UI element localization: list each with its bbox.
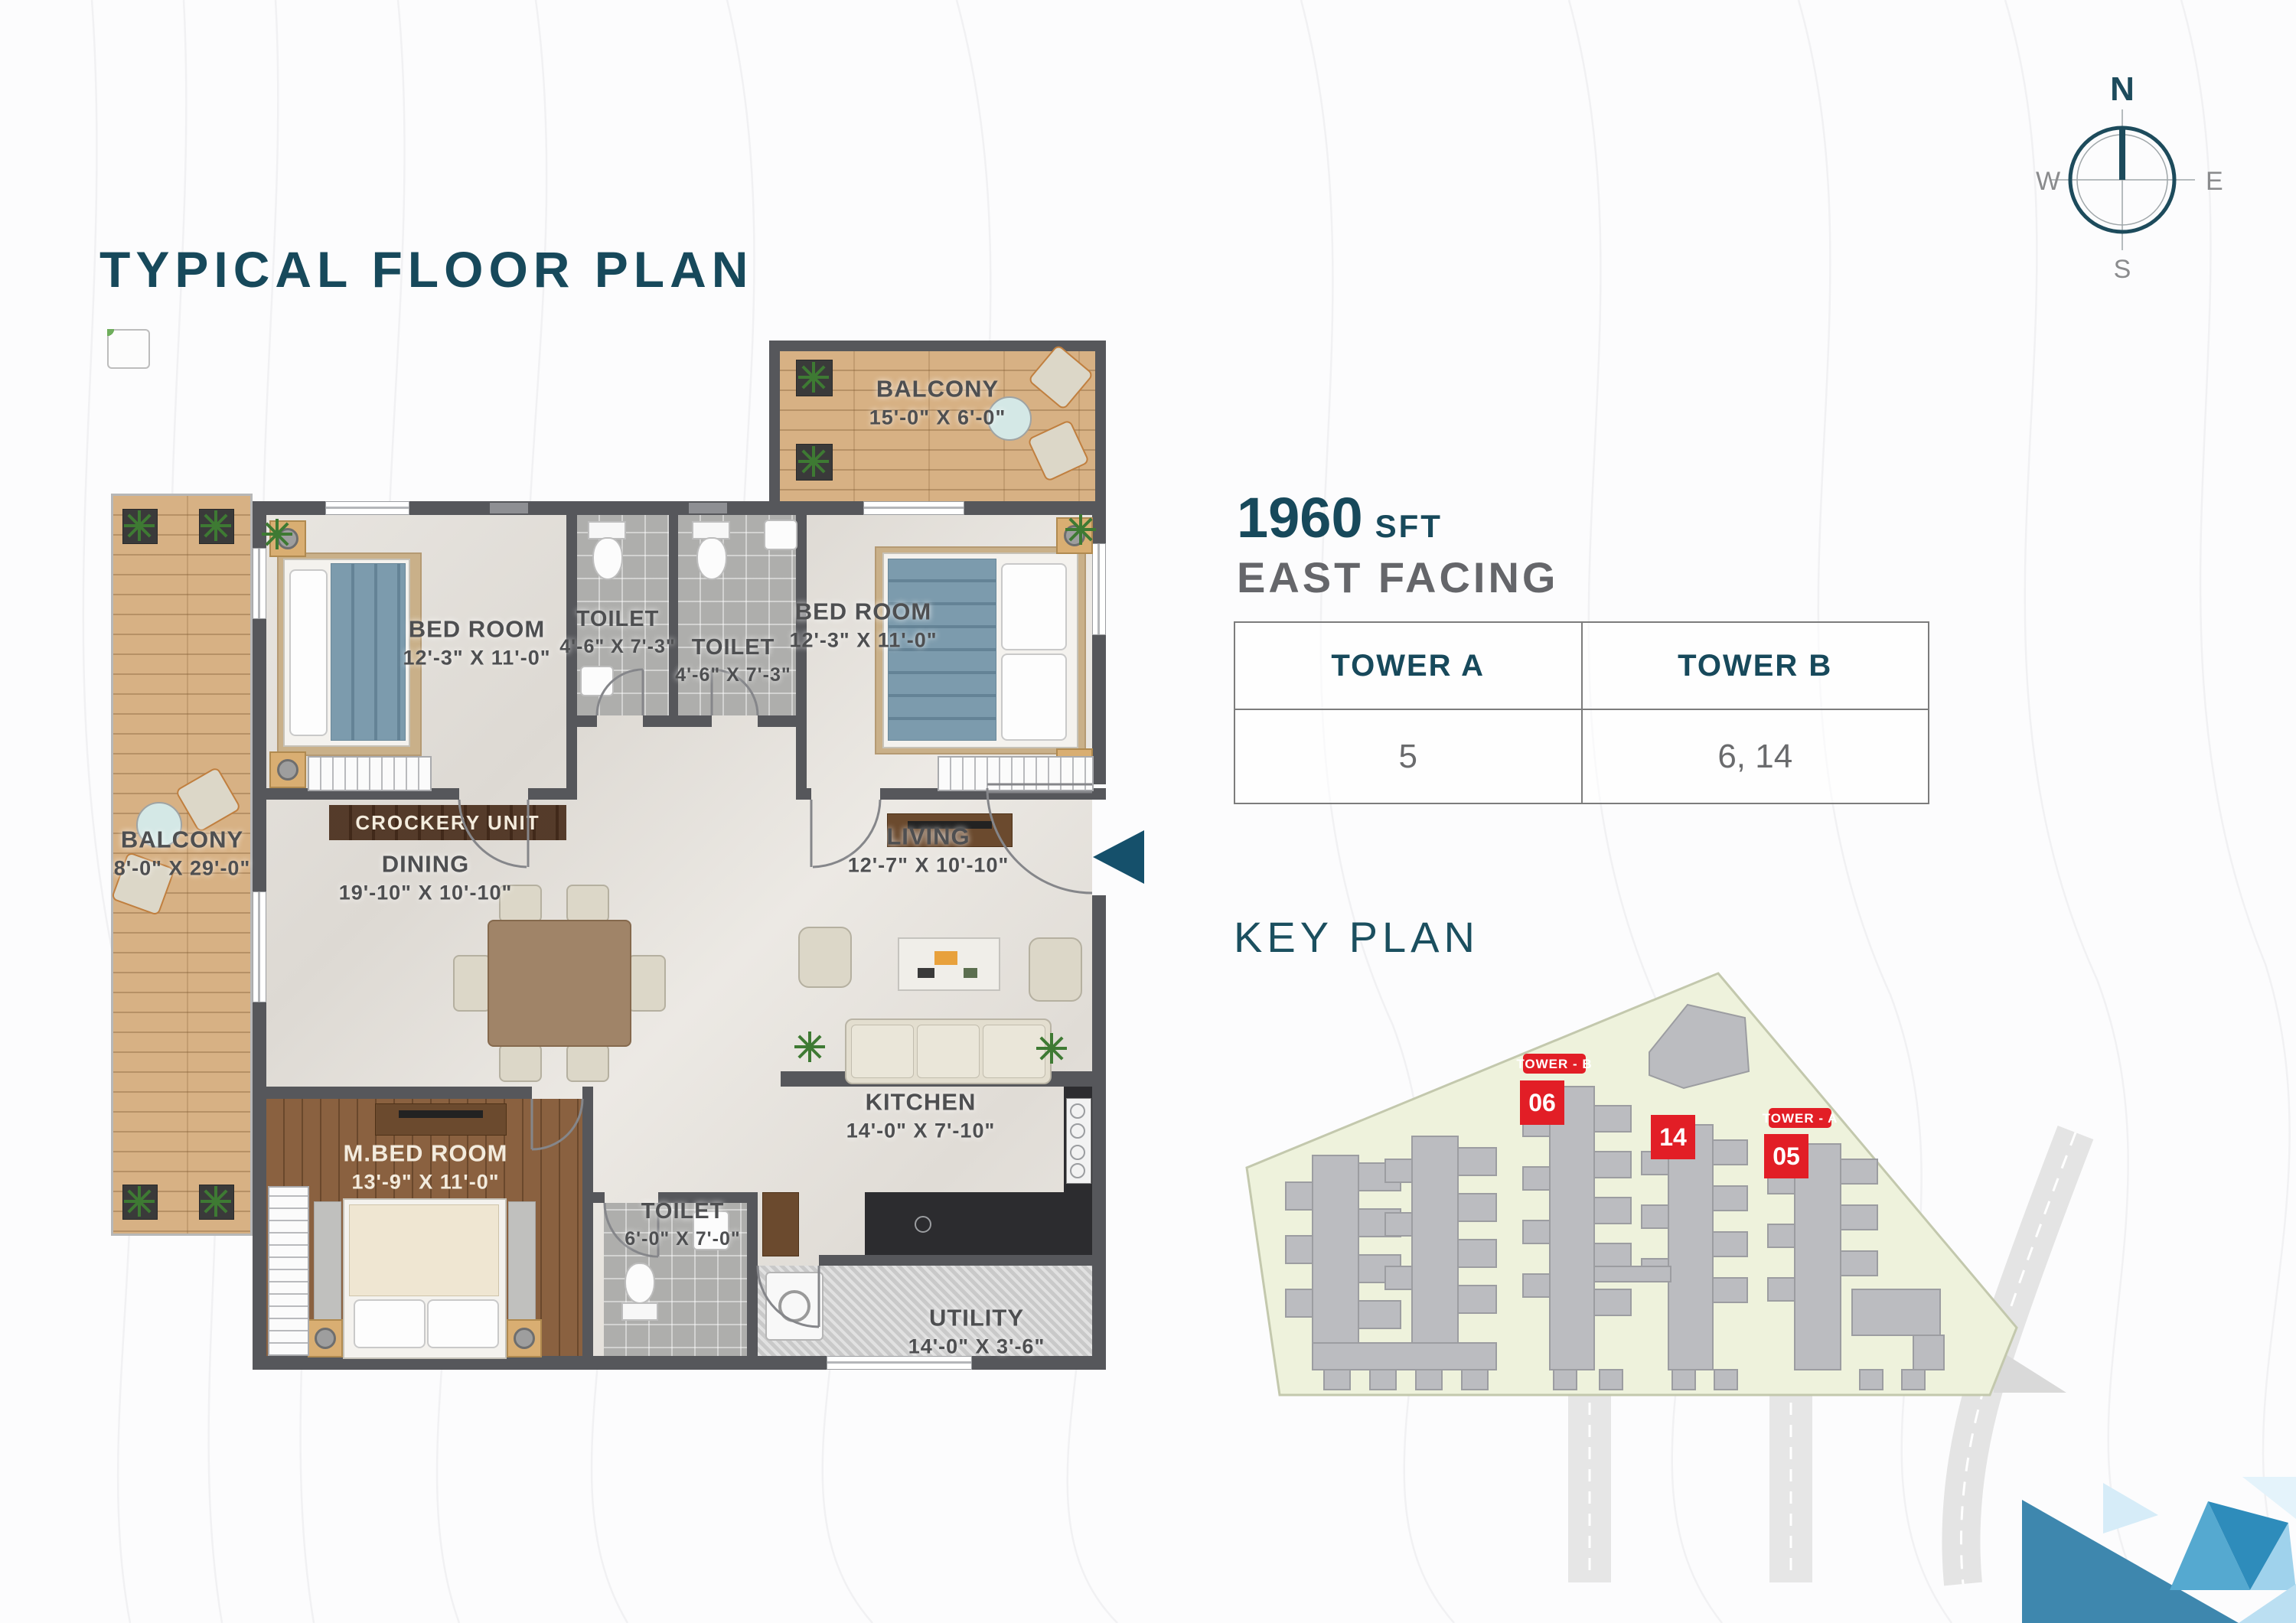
bldg [1594,1106,1631,1132]
brochure-page: TYPICAL FLOOR PLAN N W E S [0,0,2296,1623]
bldg [1523,1221,1550,1243]
line [1081,530,1091,540]
nm: BALCONY [114,824,251,855]
tower-b-header: TOWER B [1581,623,1929,709]
dm: 4'-6" X 7'-3" [675,663,791,688]
bldg [1713,1232,1747,1256]
bldg [1860,1370,1883,1390]
bldg [1458,1194,1496,1221]
area-value: 1960 [1237,485,1363,550]
bldg [1370,1370,1396,1390]
room-label-balcony-top: BALCONY15'-0" X 6'-0" [869,373,1006,431]
room-label-toilet1: TOILET4'-6" X 7'-3" [559,605,675,659]
bldg [1768,1224,1795,1247]
room-label-bedroom1: BED ROOM12'-3" X 11'-0" [403,614,550,671]
room-label-balcony-left: BALCONY8'-0" X 29'-0" [114,824,251,882]
plant-icon [798,446,829,477]
line [266,534,277,545]
bldg [1594,1289,1631,1315]
line [139,515,150,526]
line [1070,530,1081,540]
path [758,1266,819,1327]
bldg [1841,1205,1877,1230]
tt-row: TOWER A TOWER B [1235,623,1928,710]
entry-arrow-icon [1093,830,1144,884]
room-label-bedroom2: BED ROOM12'-3" X 11'-0" [789,596,937,653]
facing-label: EAST FACING [1237,552,1558,602]
bldg [1550,1087,1594,1370]
bldg [1600,1370,1623,1390]
line [266,523,277,534]
line [216,1191,227,1201]
bldg [1412,1136,1458,1370]
circle [1071,1164,1084,1178]
dm: 12'-7" X 10'-10" [848,852,1009,879]
polygon [2242,1477,2296,1519]
line [803,461,814,472]
dm: 14'-0" X 3'-6" [908,1334,1045,1361]
nm: BED ROOM [789,596,937,627]
plant-icon [1036,1033,1067,1064]
compass-e-label: E [2206,167,2223,196]
tower-a-tag-label: TOWER - A [1763,1111,1838,1126]
bldg [1286,1182,1313,1210]
bldg [1841,1159,1877,1184]
line [1070,519,1081,530]
bldg [1385,1266,1412,1289]
circle [915,1217,931,1232]
line [814,451,824,461]
room-label-kitchen: KITCHEN14'-0" X 7'-10" [846,1087,996,1144]
rect [1769,1395,1812,1582]
bldg [1458,1286,1496,1313]
line [1052,1048,1062,1059]
page-title: TYPICAL FLOOR PLAN [99,240,753,298]
line [810,1047,820,1058]
circle [1071,1104,1084,1118]
compass-n-label: N [2110,70,2135,108]
nm: DINING [339,849,513,879]
dm: 15'-0" X 6'-0" [869,405,1006,432]
key-plan-title: KEY PLAN [1234,912,1479,962]
building-cluster-left [1286,1136,1496,1390]
bldg [1714,1370,1737,1390]
room-label-dining: DINING19'-10" X 10'-10" [339,849,513,906]
bldg [1841,1251,1877,1276]
bldg [1416,1370,1442,1390]
line [139,1201,150,1212]
bldg [1594,1198,1631,1224]
room-label-utility: UTILITY14'-0" X 3'-6" [908,1302,1045,1360]
bldg [1385,1213,1412,1236]
line [129,1191,139,1201]
line [814,367,824,377]
line [1041,1048,1052,1059]
rect [1568,1395,1611,1582]
nm: KITCHEN [846,1087,996,1117]
compass-icon: N W E S [2028,65,2227,287]
path [532,1099,582,1149]
line [1052,1038,1062,1048]
tower-b-units: 6, 14 [1581,710,1929,803]
line [814,461,824,472]
key-plan-map: TOWER - B 06 14 TOWER - A 05 [1240,960,2128,1588]
bldg [1902,1370,1925,1390]
tt-row: 5 6, 14 [1235,710,1928,803]
bldg [1768,1278,1795,1301]
bldg [1672,1370,1695,1390]
compass-s-label: S [2114,255,2131,284]
compass-w-label: W [2036,167,2060,196]
line [814,377,824,388]
polygon [2103,1483,2158,1533]
line [129,1201,139,1212]
tower-b-tag-label: TOWER - B [1516,1057,1592,1071]
plant-icon [262,519,292,549]
line [803,367,814,377]
nm: LIVING [848,821,1009,852]
bldg [1713,1278,1747,1302]
line [139,1191,150,1201]
bldg [1313,1343,1496,1370]
dm: 8'-0" X 29'-0" [114,855,251,882]
plant-icon [124,1186,155,1217]
line [216,515,227,526]
line [216,526,227,536]
nm: TOILET [559,605,675,634]
line [129,526,139,536]
line [205,526,216,536]
tower-table: TOWER A TOWER B 5 6, 14 [1234,621,1929,804]
line [799,1036,810,1047]
line [277,534,288,545]
plant-icon [201,1186,231,1217]
line [139,526,150,536]
bldg [1286,1236,1313,1263]
bldg [1713,1140,1747,1165]
bldg [1852,1289,1940,1335]
line [205,515,216,526]
line [803,377,814,388]
nm: TOILET [675,634,791,663]
line [1041,1038,1052,1048]
line [1081,519,1091,530]
unit-05-label: 05 [1773,1142,1800,1170]
bldg [1523,1167,1550,1190]
bldg [1713,1186,1747,1211]
line [205,1191,216,1201]
bldg [1462,1370,1488,1390]
line [803,451,814,461]
bldg [1324,1370,1350,1390]
circle [1071,1124,1084,1138]
dm: 12'-3" X 11'-0" [403,645,550,672]
room-label-toilet3: TOILET6'-0" X 7'-0" [625,1198,740,1251]
plant-icon [794,1031,825,1062]
plant-icon [1065,514,1096,545]
nm: UTILITY [908,1302,1045,1333]
dm: 4'-6" X 7'-3" [559,634,675,660]
room-label-master-bedroom: M.BED ROOM13'-9" X 11'-0" [344,1138,508,1195]
dm: 12'-3" X 11'-0" [789,627,937,654]
unit-06-label: 06 [1528,1089,1556,1116]
tower-a-header: TOWER A [1235,623,1581,709]
line [810,1036,820,1047]
bldg [1594,1243,1631,1269]
dm: 14'-0" X 7'-10" [846,1118,996,1145]
bldg [1913,1335,1944,1370]
g [459,670,1092,1327]
bldg [1286,1289,1313,1317]
nm: BED ROOM [403,614,550,644]
tower-a-units: 5 [1235,710,1581,803]
path [597,670,643,715]
circle [1071,1146,1084,1159]
bldg [1594,1152,1631,1178]
bldg [1458,1240,1496,1267]
plant-icon [798,362,829,393]
bldg [1594,1266,1671,1282]
dm: 13'-9" X 11'-0" [344,1169,508,1196]
dm: 19'-10" X 10'-10" [339,880,513,907]
line [205,1201,216,1212]
unit-area: 1960 SFT [1237,485,1443,550]
bldg [1458,1148,1496,1175]
line [277,523,288,534]
room-label-living: LIVING12'-7" X 10'-10" [848,821,1009,878]
bldg [1313,1155,1358,1370]
bldg [1385,1159,1412,1182]
area-unit: SFT [1375,508,1443,545]
plant-icon [124,510,155,541]
plant-icon [201,510,231,541]
room-label-toilet2: TOILET4'-6" X 7'-3" [675,634,791,687]
unit-14-label: 14 [1659,1123,1687,1151]
nm: TOILET [625,1198,740,1227]
line [216,1201,227,1212]
circle [107,329,114,336]
bldg [1668,1125,1713,1370]
floor-plan: CROCKERY UNIT [107,329,1194,1377]
bldg [1358,1301,1401,1328]
dm: 6'-0" X 7'-0" [625,1227,740,1252]
bldg [1642,1205,1668,1228]
nm: BALCONY [869,373,1006,404]
bldg [1523,1274,1550,1297]
line [129,515,139,526]
line [799,1047,810,1058]
nm: M.BED ROOM [344,1138,508,1168]
bldg [1554,1370,1577,1390]
logo-triangles [2013,1477,2296,1623]
